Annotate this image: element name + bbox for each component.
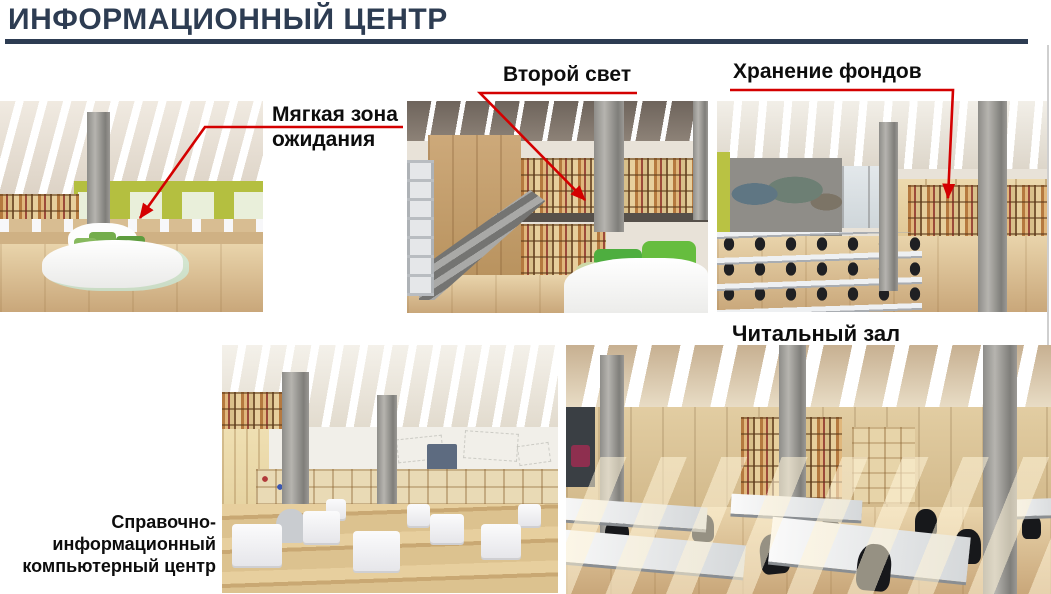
chemistry-formula-doodle — [463, 430, 519, 462]
concrete-column — [693, 101, 708, 220]
green-accent-wall — [717, 152, 730, 245]
render-computer-center — [222, 345, 558, 593]
sunlight-streaks — [566, 457, 1051, 594]
imac-monitor — [232, 524, 282, 566]
render-mezzanine-second-light — [407, 101, 708, 313]
concrete-column — [377, 395, 397, 512]
ceiling-lights — [566, 345, 1051, 407]
imac-monitor — [303, 511, 340, 543]
render-book-storage — [717, 101, 1047, 312]
title-underline — [5, 39, 1028, 44]
render-reading-hall — [566, 345, 1051, 594]
white-sofa — [564, 258, 708, 313]
concrete-column — [594, 101, 624, 232]
imac-monitor — [407, 504, 431, 526]
concrete-column — [879, 122, 899, 291]
metal-shelving-rack — [407, 160, 434, 296]
concrete-column — [978, 101, 1008, 312]
label-soft-zone: Мягкая зона ожидания — [272, 102, 398, 152]
concrete-column — [282, 372, 309, 521]
label-second-light: Второй свет — [503, 63, 631, 87]
world-map-wall — [730, 158, 842, 238]
imac-monitor — [430, 514, 464, 544]
slide: ИНФОРМАЦИОННЫЙ ЦЕНТР — [0, 0, 1051, 594]
concrete-column — [87, 112, 111, 234]
page-title: ИНФОРМАЦИОННЫЙ ЦЕНТР — [8, 3, 448, 37]
label-storage: Хранение фондов — [733, 60, 922, 84]
label-reading-hall: Читальный зал — [732, 321, 900, 347]
white-curved-sofa — [42, 240, 189, 291]
imac-monitor — [481, 524, 521, 559]
render-soft-seating-lounge — [0, 101, 263, 312]
mezzanine-bookshelf — [222, 392, 286, 429]
label-computer-center: Справочно- информационный компьютерный ц… — [18, 511, 216, 577]
imac-monitor — [518, 504, 542, 526]
imac-monitor — [353, 531, 400, 571]
